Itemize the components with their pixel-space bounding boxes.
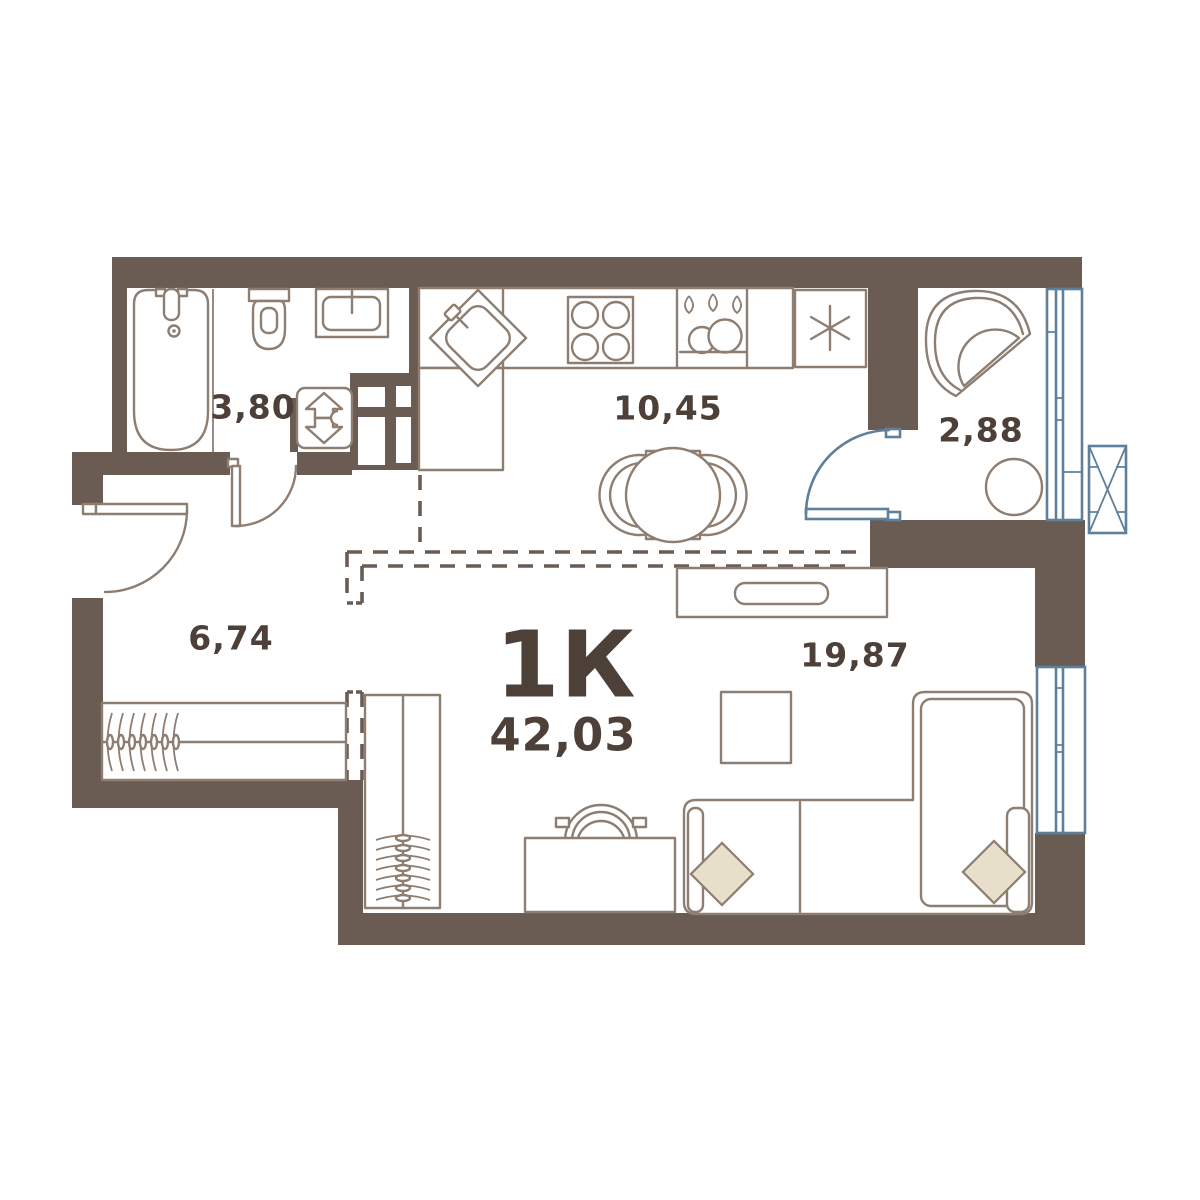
wall-bathroom-kitchen-partition <box>409 288 419 373</box>
studio-wardrobe <box>365 695 440 908</box>
dining-table-icon <box>600 448 747 542</box>
ac-basket-icon <box>1089 446 1126 533</box>
floorplan-page: 3,80 10,45 2,88 6,74 19,87 1К 42,03 <box>0 0 1200 1200</box>
area-label-balcony: 2,88 <box>938 411 1023 450</box>
wall-top <box>112 257 1082 288</box>
floorplan-svg: 3,80 10,45 2,88 6,74 19,87 1К 42,03 <box>0 0 1200 1200</box>
vent-shaft-icon <box>350 373 420 470</box>
bathroom-door-arc-icon <box>228 459 296 526</box>
wall-bathroom-bottom-left <box>102 452 230 475</box>
area-label-living-room: 19,87 <box>800 636 909 675</box>
wall-bottom <box>338 913 1085 945</box>
wall-balcony-bottom <box>870 520 1085 568</box>
balcony-table-icon <box>986 459 1042 515</box>
coffee-table-icon <box>721 692 791 763</box>
wall-hallway-bottom <box>72 780 363 808</box>
kitchen-counter-side <box>419 368 503 470</box>
wall-entrance-niche <box>72 452 103 505</box>
bathroom-sink-icon <box>316 289 388 337</box>
washing-machine-icon <box>297 388 352 448</box>
wall-kitchen-balcony <box>868 288 918 430</box>
area-label-hallway: 6,74 <box>188 619 273 658</box>
area-label-kitchen: 10,45 <box>613 389 722 428</box>
fridge-snowflake-icon <box>795 290 866 367</box>
stove-burners-icon <box>568 297 633 363</box>
balcony-door-arc-icon <box>806 429 900 520</box>
bathtub-icon <box>134 289 208 450</box>
toilet-icon <box>249 289 289 349</box>
hallway-wardrobe <box>102 703 346 780</box>
balcony-glazing-icon <box>1047 289 1082 520</box>
wall-right-above-window <box>1035 568 1085 667</box>
tv-stand-icon <box>677 568 887 617</box>
total-area-label: 42,03 <box>489 709 636 762</box>
area-label-bathroom: 3,80 <box>210 388 295 427</box>
wall-bathroom-bottom-right <box>297 452 352 475</box>
wall-left-lower <box>72 598 103 808</box>
wall-right-below-window <box>1035 833 1085 945</box>
wall-left-upper <box>112 257 127 455</box>
apartment-type-label: 1К <box>495 612 636 719</box>
entrance-door-arc-icon <box>83 504 187 592</box>
hallway <box>83 504 440 908</box>
balcony-armchair-icon <box>926 291 1030 396</box>
desk-icon <box>525 838 675 912</box>
window-icon <box>1037 667 1085 833</box>
